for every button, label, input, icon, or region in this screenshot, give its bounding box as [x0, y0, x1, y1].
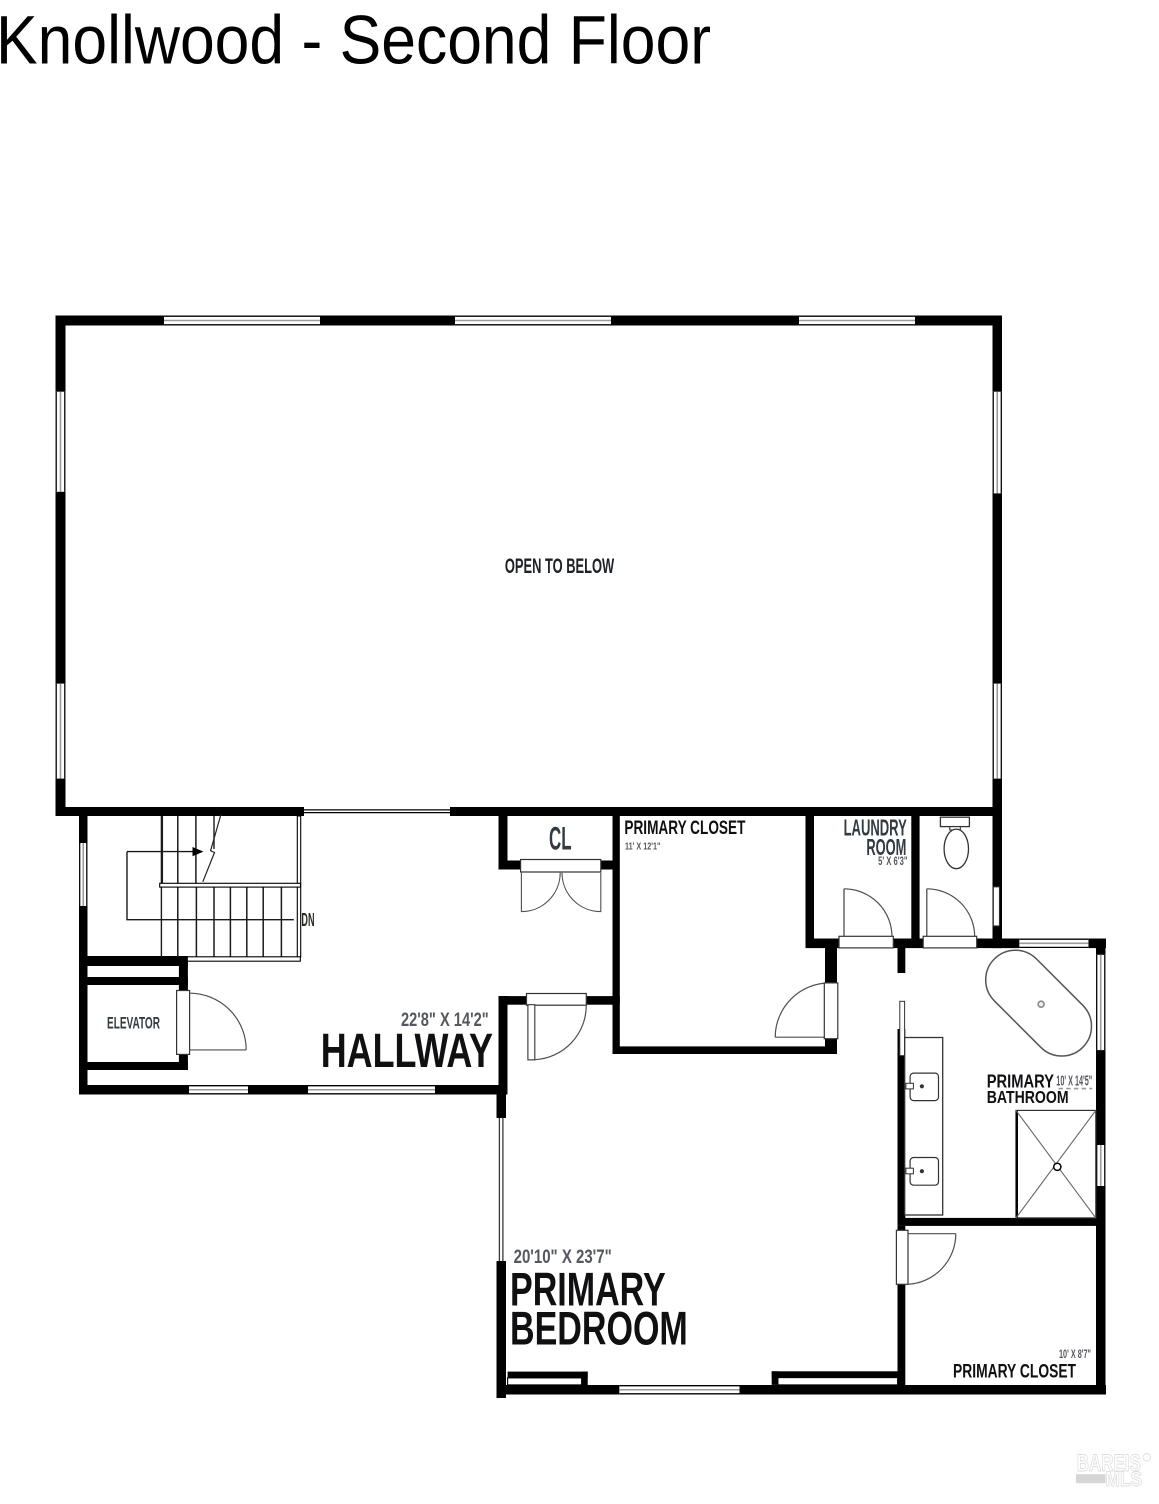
svg-text:Knollwood - Second Floor: Knollwood - Second Floor	[0, 2, 711, 79]
svg-text:ELEVATOR: ELEVATOR	[107, 1014, 160, 1033]
svg-text:MLS: MLS	[1106, 1468, 1143, 1491]
svg-text:5' X 6'3": 5' X 6'3"	[878, 856, 907, 868]
svg-text:PRIMARY CLOSET: PRIMARY CLOSET	[624, 817, 745, 839]
svg-text:DN: DN	[301, 910, 314, 930]
svg-text:11' X 12'1": 11' X 12'1"	[625, 841, 661, 852]
svg-text:10' X 8'7": 10' X 8'7"	[1059, 1348, 1091, 1361]
svg-text:PRIMARY CLOSET: PRIMARY CLOSET	[953, 1361, 1076, 1383]
svg-text:BATHROOM: BATHROOM	[987, 1087, 1069, 1107]
svg-text:CL: CL	[549, 821, 572, 857]
svg-text:OPEN TO BELOW: OPEN TO BELOW	[505, 554, 615, 578]
svg-text:HALLWAY: HALLWAY	[321, 1024, 493, 1078]
svg-text:BEDROOM: BEDROOM	[510, 1303, 688, 1356]
